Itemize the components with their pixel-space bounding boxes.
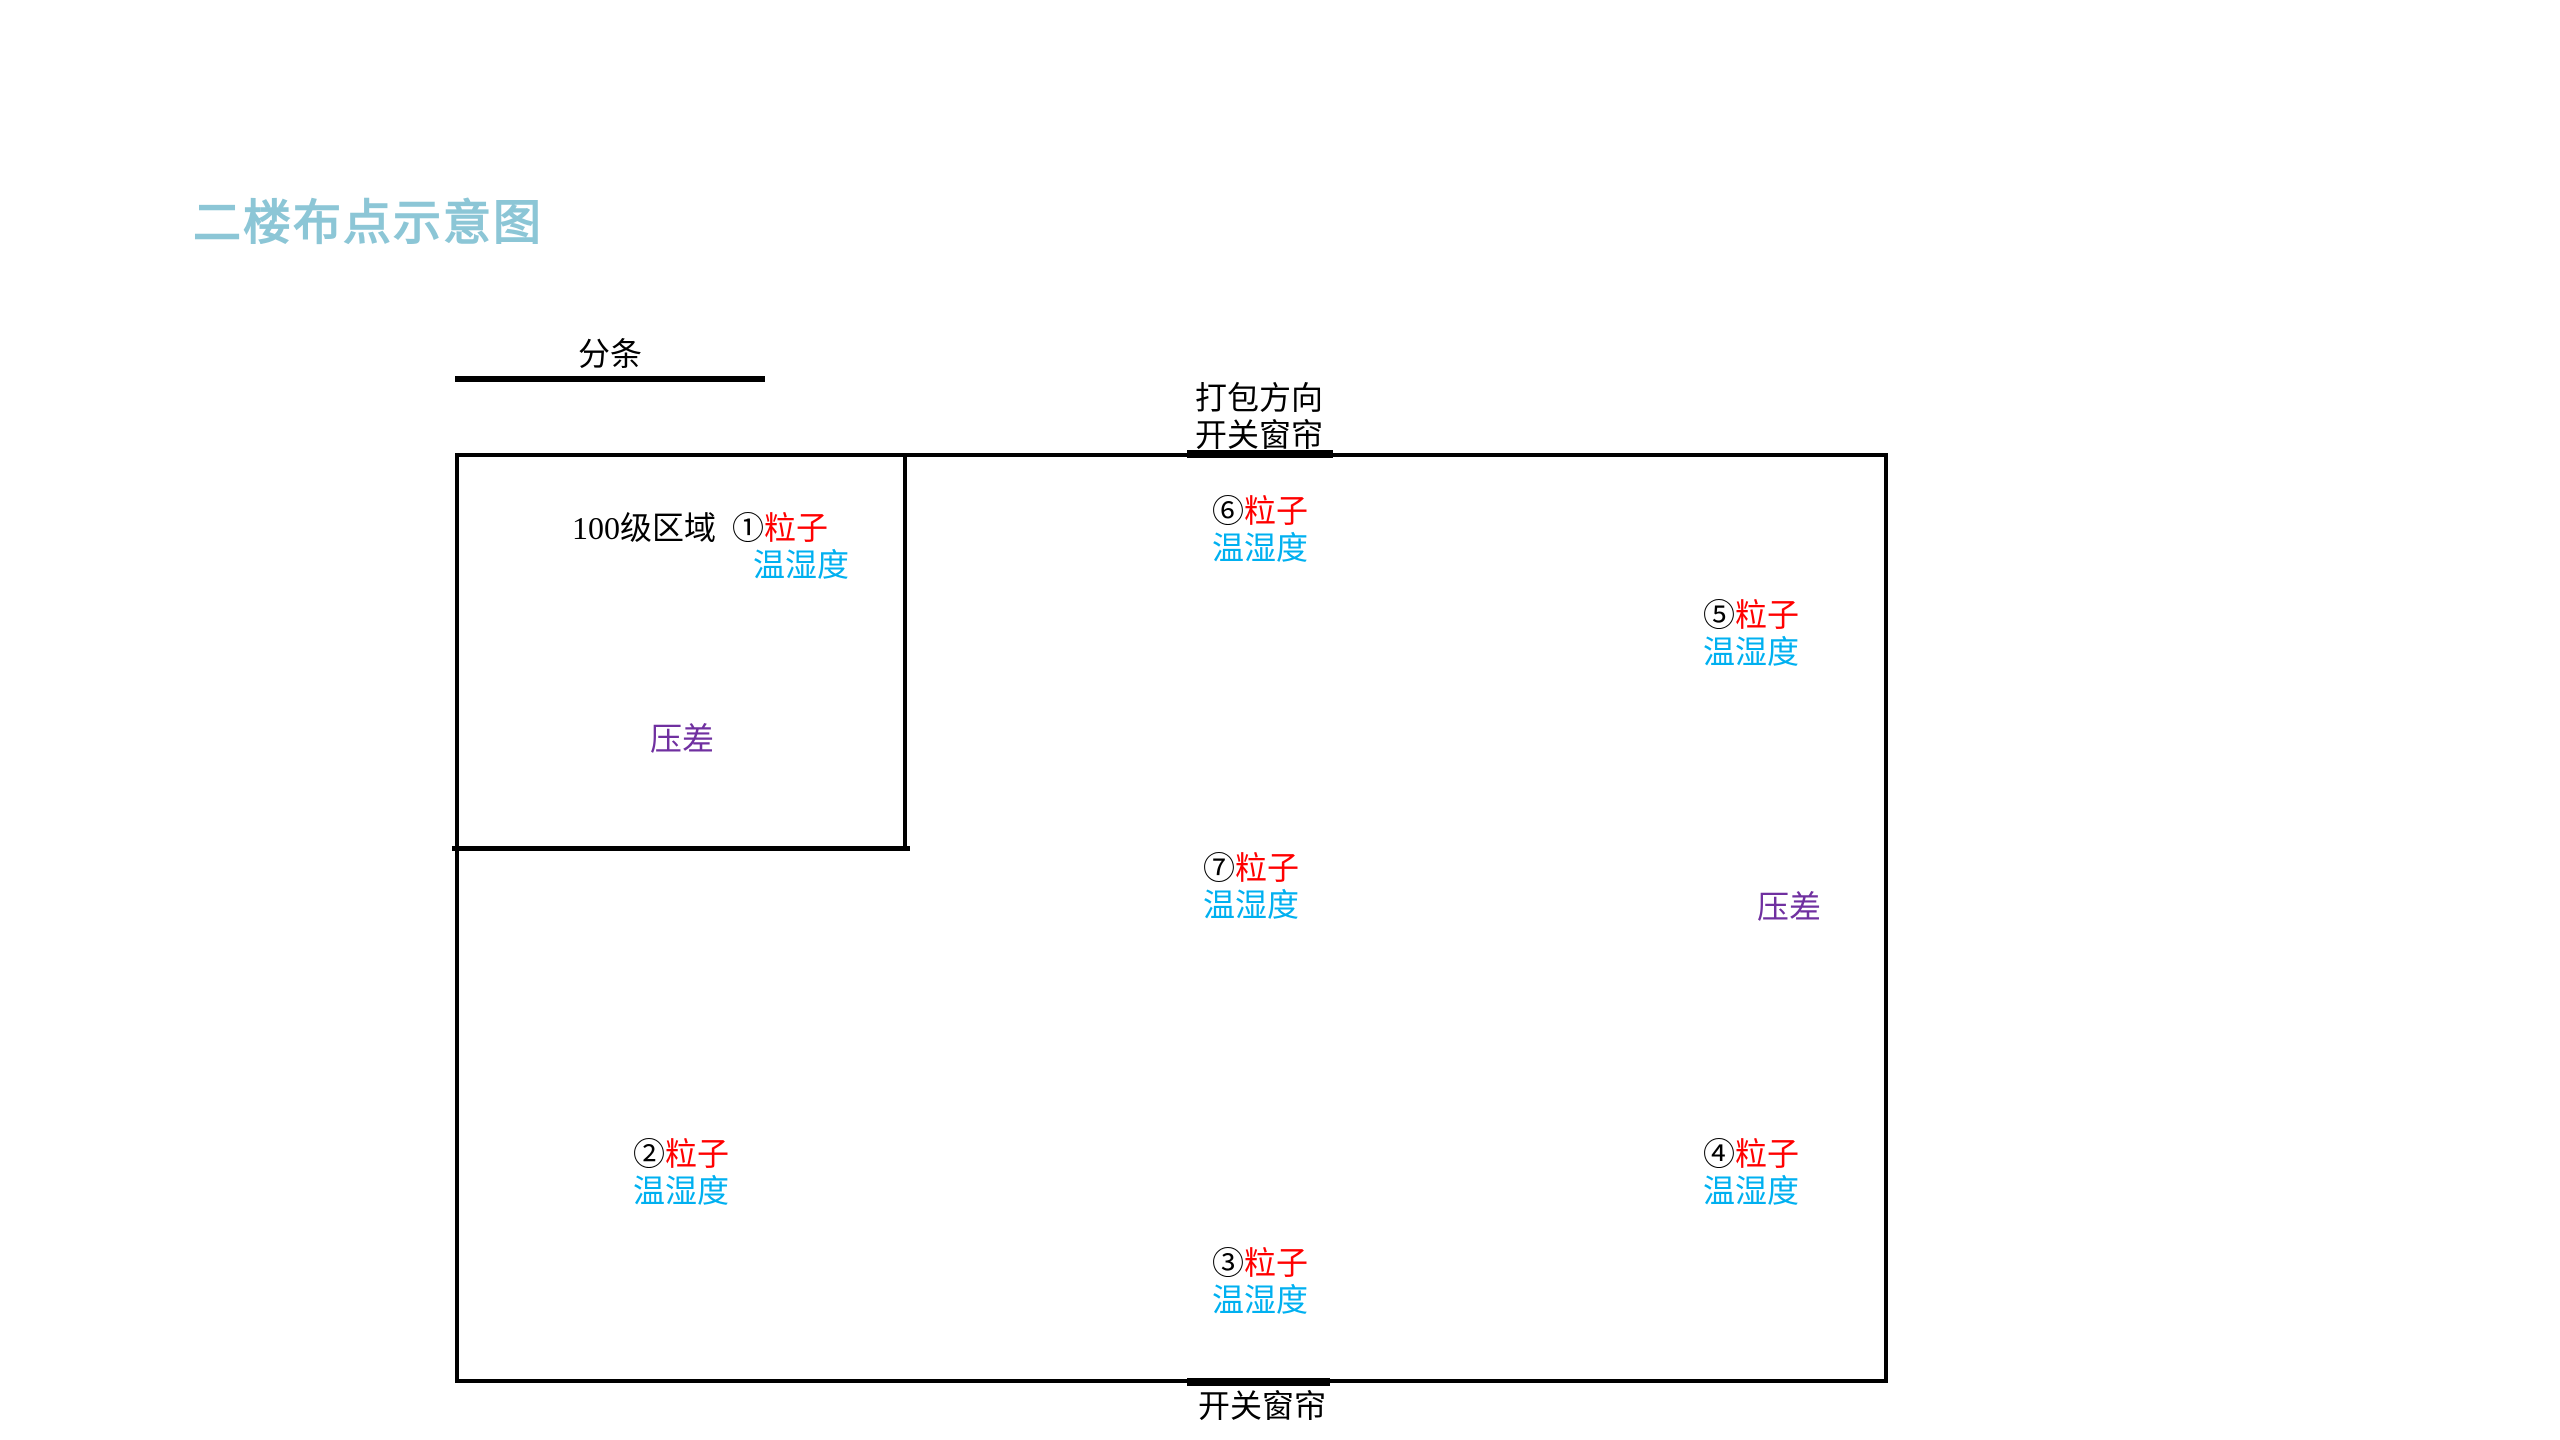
- point-2: ②粒子 温湿度: [633, 1136, 729, 1210]
- point-7-particle-label: 粒子: [1235, 850, 1299, 886]
- right-pressure-label: 压差: [1757, 889, 1821, 926]
- point-1-marker: ①: [732, 510, 764, 546]
- point-5-marker: ⑤: [1703, 597, 1735, 633]
- point-6: ⑥粒子 温湿度: [1212, 493, 1308, 567]
- point-4: ④粒子 温湿度: [1703, 1136, 1799, 1210]
- curtain-top-label: 开关窗帘: [1195, 417, 1323, 454]
- point-3-marker: ③: [1212, 1245, 1244, 1281]
- point-5-particle-label: 粒子: [1735, 597, 1799, 633]
- floorplan-diagram: 二楼布点示意图 分条 打包方向 开关窗帘 100级区域①粒子 温湿度 压差 ⑥粒…: [0, 0, 2560, 1440]
- cleanroom-pressure-label: 压差: [650, 721, 714, 758]
- point-5-temp-humidity-label: 温湿度: [1703, 634, 1799, 671]
- strip-label: 分条: [455, 336, 765, 373]
- point-1: 100级区域①粒子: [572, 510, 828, 547]
- point-7: ⑦粒子 温湿度: [1203, 850, 1299, 924]
- point-3-particle-label: 粒子: [1244, 1245, 1308, 1281]
- packing-direction-annotation: 打包方向 开关窗帘: [1195, 380, 1323, 454]
- point-1-temp-humidity-label: 温湿度: [753, 547, 849, 584]
- point-2-particle-label: 粒子: [665, 1136, 729, 1172]
- clean-area-label: 100级区域: [572, 510, 716, 546]
- curtain-bottom-label: 开关窗帘: [1198, 1388, 1326, 1425]
- point-1-particle-label: 粒子: [764, 510, 828, 546]
- point-3-temp-humidity-label: 温湿度: [1212, 1282, 1308, 1319]
- point-7-marker: ⑦: [1203, 850, 1235, 886]
- point-2-temp-humidity-label: 温湿度: [633, 1173, 729, 1210]
- curtain-segment-top: [1187, 450, 1333, 458]
- curtain-segment-bottom: [1187, 1378, 1330, 1386]
- point-4-marker: ④: [1703, 1136, 1735, 1172]
- packing-direction-label: 打包方向: [1195, 380, 1323, 417]
- strip-line: [455, 376, 765, 382]
- room-outline: [455, 453, 1888, 1383]
- point-4-temp-humidity-label: 温湿度: [1703, 1173, 1799, 1210]
- cleanroom-wall-vertical: [903, 453, 907, 850]
- cleanroom-wall-horizontal: [452, 846, 910, 851]
- point-6-particle-label: 粒子: [1244, 493, 1308, 529]
- point-5: ⑤粒子 温湿度: [1703, 597, 1799, 671]
- point-3: ③粒子 温湿度: [1212, 1245, 1308, 1319]
- page-title: 二楼布点示意图: [193, 183, 543, 253]
- point-2-marker: ②: [633, 1136, 665, 1172]
- point-6-temp-humidity-label: 温湿度: [1212, 530, 1308, 567]
- point-4-particle-label: 粒子: [1735, 1136, 1799, 1172]
- point-6-marker: ⑥: [1212, 493, 1244, 529]
- point-7-temp-humidity-label: 温湿度: [1203, 887, 1299, 924]
